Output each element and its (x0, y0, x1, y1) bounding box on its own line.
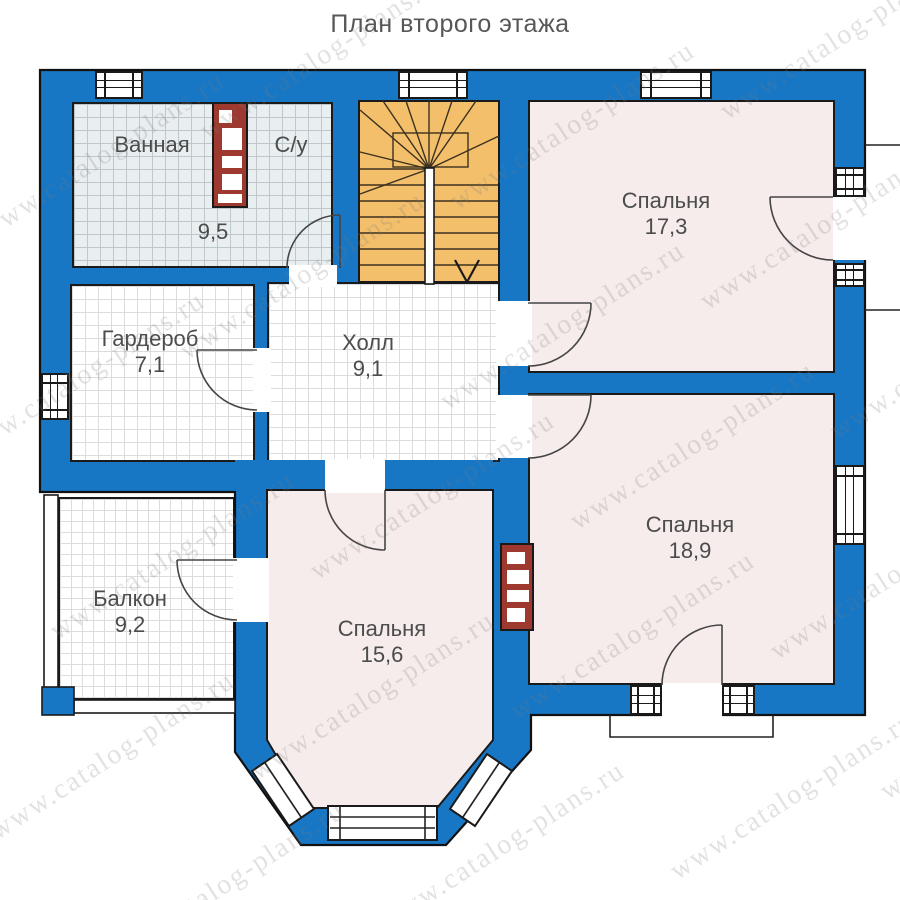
right-exterior-balcony (865, 145, 900, 310)
window-top-bedroom-17 (640, 71, 712, 99)
page-title: План второго этажа (0, 10, 900, 39)
room-label-bedroom-18: Спальня18,9 (646, 512, 734, 564)
window-right-bedroom-18 (835, 465, 865, 545)
room-label-bedroom-15: Спальня15,6 (338, 616, 426, 668)
bottom-porch (610, 715, 773, 737)
room-label-bathroom: Ванная (114, 132, 189, 158)
watermark: www.catalog-plans.ru (374, 755, 631, 900)
wall-left-lower (40, 460, 235, 492)
window-right-bedroom-17-upper (835, 167, 865, 197)
window-bottom-bedroom-18-right (722, 685, 755, 715)
floor-stairs (358, 100, 500, 283)
window-left-wardrobe (41, 373, 69, 420)
bay-windows (252, 754, 512, 840)
window-bottom-bedroom-18-left (630, 685, 662, 715)
chimney-bathroom (212, 102, 248, 208)
window-right-bedroom-17-lower (835, 263, 865, 287)
room-label-hall: Холл9,1 (342, 330, 394, 382)
watermark: www.catalog-plans.ru (94, 795, 351, 900)
room-label-wardrobe: Гардероб7,1 (102, 326, 199, 378)
room-label-bedroom-17: Спальня17,3 (622, 188, 710, 240)
room-label-wc: С/у (275, 132, 308, 158)
watermark: www.catalog-plans.ru (664, 705, 900, 887)
room-area-bathroom: 9,5 (198, 219, 229, 245)
watermark: www.catalog-plans.ru (874, 625, 900, 807)
window-top-stairs (398, 71, 468, 99)
room-label-balcony: Балкон9,2 (93, 586, 167, 638)
chimney-bedroom-18 (500, 543, 534, 631)
window-top-bathroom (95, 71, 143, 99)
floor-plan-page: План второго этажа (0, 0, 900, 900)
